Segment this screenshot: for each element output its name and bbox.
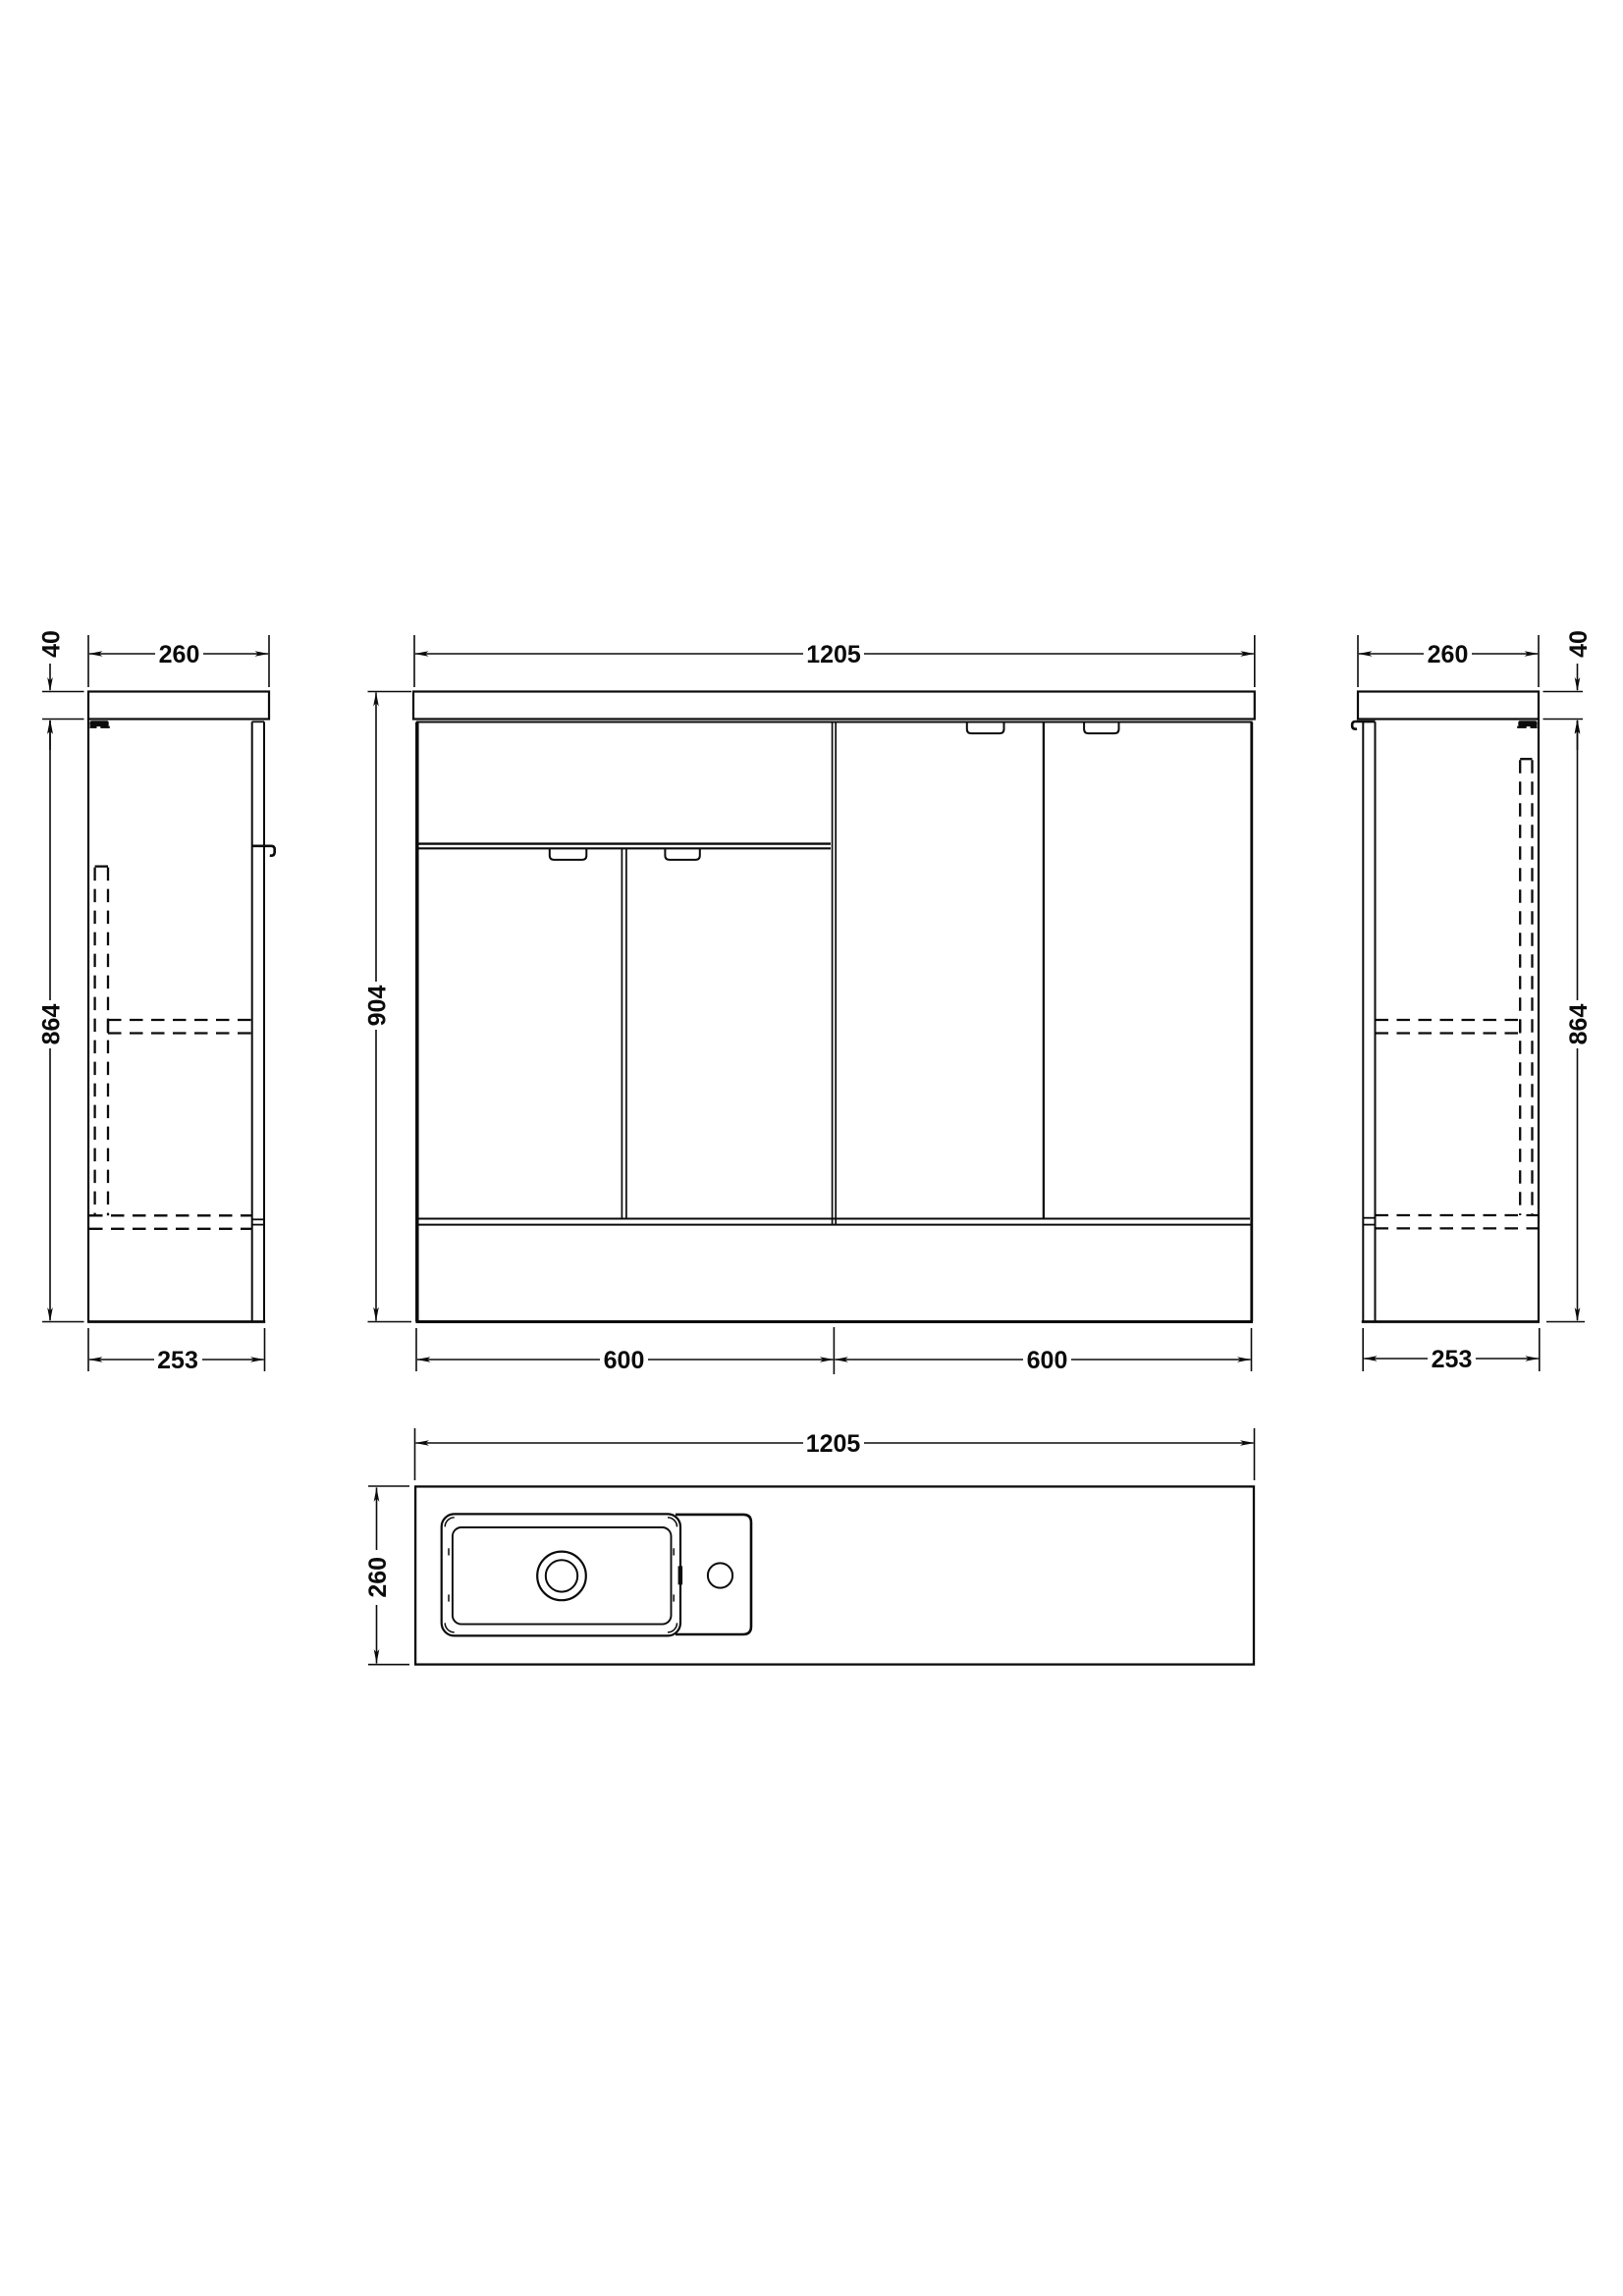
svg-text:904: 904 bbox=[364, 986, 392, 1027]
svg-text:600: 600 bbox=[604, 1347, 645, 1374]
svg-text:260: 260 bbox=[159, 641, 200, 668]
svg-text:600: 600 bbox=[1027, 1347, 1068, 1374]
svg-text:253: 253 bbox=[157, 1347, 198, 1374]
svg-text:1205: 1205 bbox=[806, 641, 861, 668]
svg-text:40: 40 bbox=[1565, 630, 1593, 658]
svg-text:864: 864 bbox=[38, 1004, 66, 1045]
svg-text:1205: 1205 bbox=[806, 1430, 861, 1458]
svg-text:260: 260 bbox=[1428, 641, 1469, 668]
svg-text:260: 260 bbox=[364, 1557, 392, 1598]
svg-text:253: 253 bbox=[1432, 1346, 1473, 1373]
svg-text:40: 40 bbox=[38, 630, 66, 658]
svg-text:864: 864 bbox=[1565, 1004, 1593, 1045]
